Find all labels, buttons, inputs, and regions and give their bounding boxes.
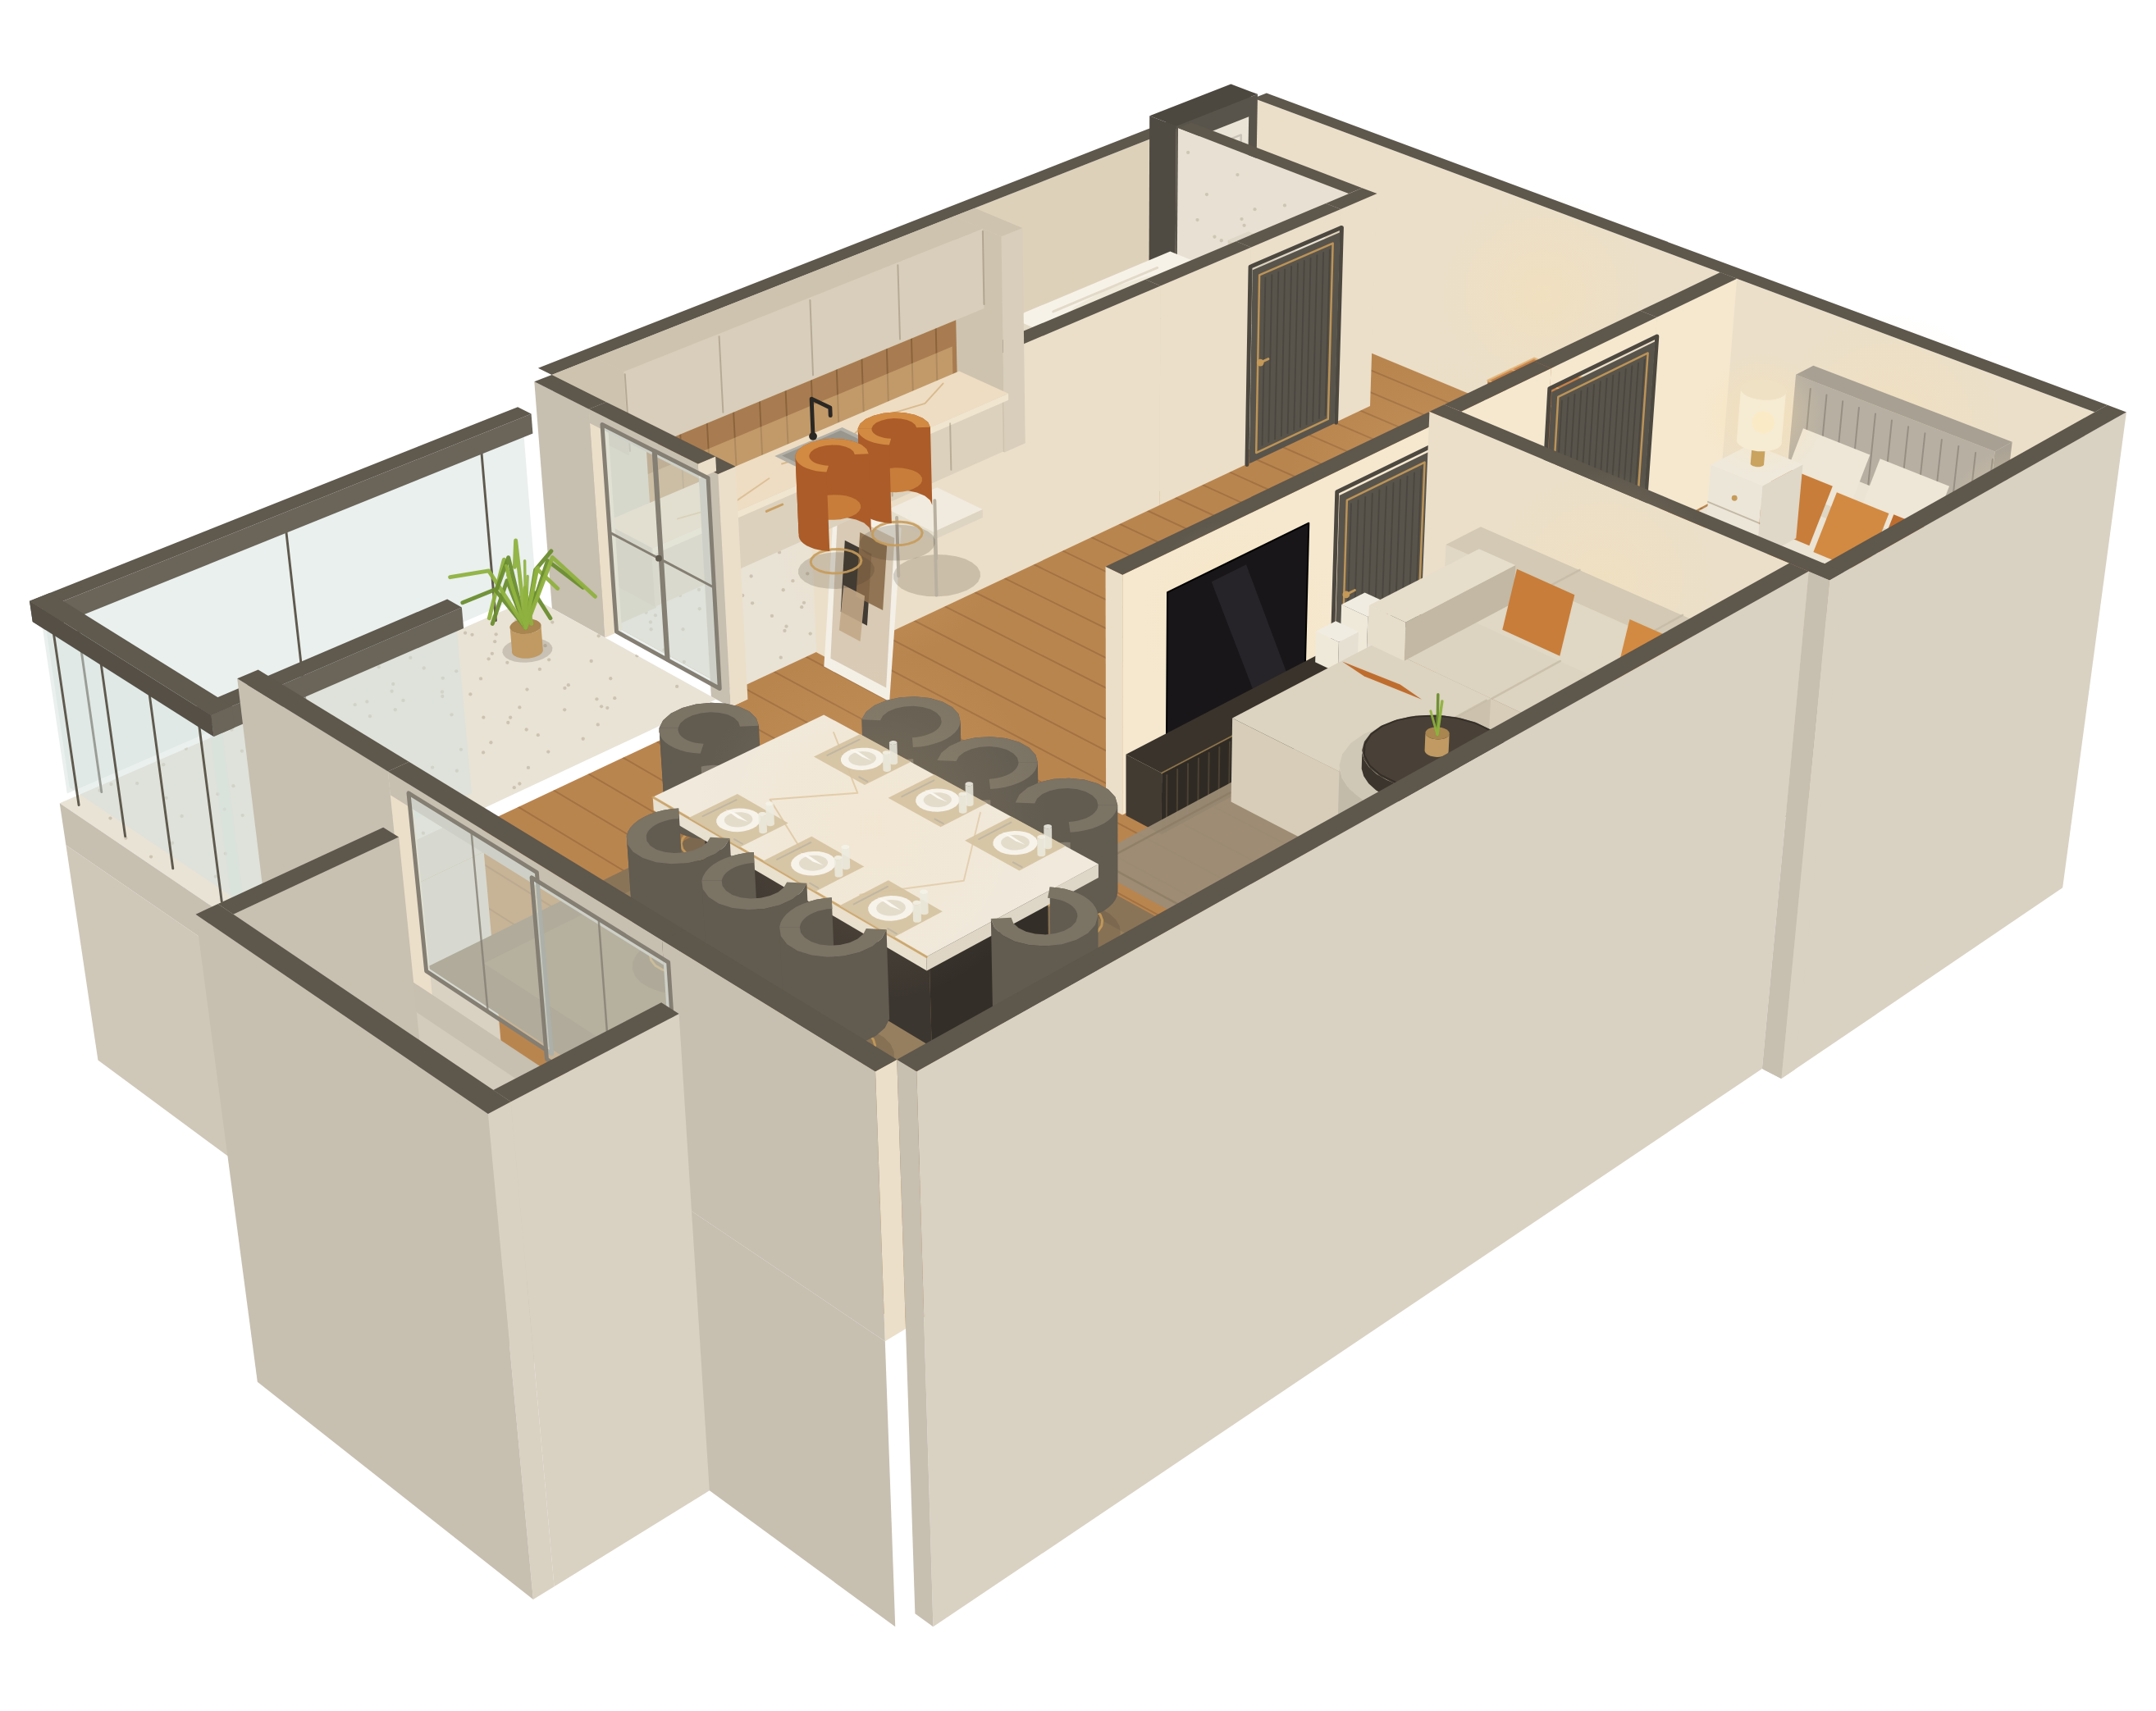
apartment-scene [30,84,2126,1627]
floor-plan-render [0,0,2156,1711]
isometric-apartment-rendering [0,0,2156,1711]
